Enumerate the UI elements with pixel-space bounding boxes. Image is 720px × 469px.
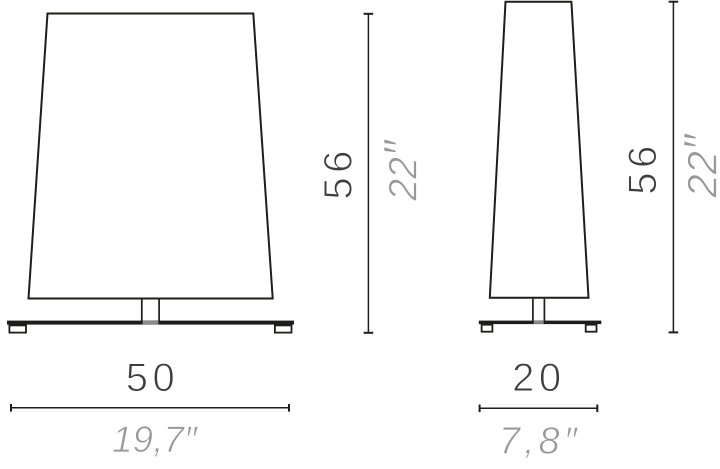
svg-text:7,8″: 7,8″ <box>499 421 581 463</box>
svg-text:22″: 22″ <box>374 139 427 202</box>
svg-text:20: 20 <box>512 356 566 400</box>
svg-text:56: 56 <box>316 146 360 200</box>
svg-text:56: 56 <box>621 141 665 195</box>
svg-text:22″: 22″ <box>674 133 720 199</box>
svg-text:19,7″: 19,7″ <box>112 419 199 460</box>
svg-text:50: 50 <box>126 356 180 400</box>
